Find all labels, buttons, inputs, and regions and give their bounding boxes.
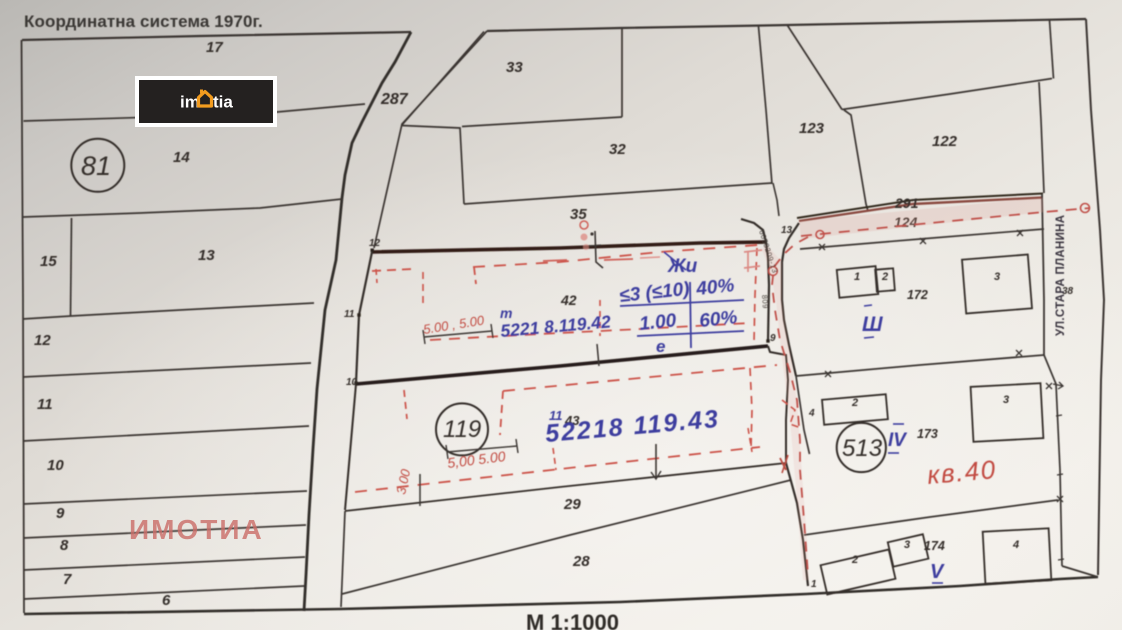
svg-text:УЛ.СТАРА ПЛАНИНА: УЛ.СТАРА ПЛАНИНА bbox=[1055, 215, 1067, 336]
svg-text:2: 2 bbox=[851, 397, 858, 409]
svg-text:60%: 60% bbox=[698, 307, 738, 332]
svg-text:40%: 40% bbox=[694, 275, 735, 300]
svg-text:3: 3 bbox=[1003, 394, 1009, 406]
svg-text:123: 123 bbox=[799, 120, 825, 137]
svg-text:172: 172 bbox=[907, 288, 928, 302]
svg-text:3: 3 bbox=[904, 539, 910, 551]
svg-text:11: 11 bbox=[549, 408, 563, 423]
svg-text:6: 6 bbox=[162, 592, 171, 609]
svg-text:Ш: Ш bbox=[862, 313, 883, 336]
svg-text:33: 33 bbox=[506, 59, 523, 76]
svg-text:17: 17 bbox=[206, 39, 223, 56]
svg-text:1.00: 1.00 bbox=[638, 310, 677, 335]
svg-text:7: 7 bbox=[63, 571, 72, 588]
svg-text:13: 13 bbox=[781, 225, 793, 236]
svg-text:9: 9 bbox=[56, 505, 65, 522]
svg-text:tіa: tіa bbox=[213, 93, 233, 112]
svg-text:e: e bbox=[656, 337, 665, 356]
svg-text:9: 9 bbox=[770, 333, 776, 344]
svg-text:42: 42 bbox=[560, 292, 577, 308]
svg-text:173: 173 bbox=[917, 427, 938, 441]
svg-text:1: 1 bbox=[854, 271, 860, 283]
svg-text:V: V bbox=[930, 561, 945, 583]
svg-text:2: 2 bbox=[881, 271, 888, 283]
svg-text:ИМОТИА: ИМОТИА bbox=[129, 514, 264, 545]
svg-text:174: 174 bbox=[924, 539, 945, 553]
svg-text:809: 809 bbox=[760, 295, 770, 310]
svg-text:кв.40: кв.40 bbox=[926, 454, 998, 490]
svg-text:11: 11 bbox=[37, 396, 53, 413]
svg-text:32: 32 bbox=[609, 141, 626, 158]
svg-text:13: 13 bbox=[198, 247, 215, 264]
svg-text:10: 10 bbox=[47, 457, 64, 474]
svg-text:2: 2 bbox=[851, 554, 858, 566]
svg-text:im: im bbox=[180, 93, 200, 112]
svg-text:М 1:1000: М 1:1000 bbox=[526, 610, 619, 630]
svg-text:12: 12 bbox=[369, 238, 381, 249]
svg-text:14: 14 bbox=[173, 149, 190, 166]
svg-text:т: т bbox=[500, 305, 512, 321]
svg-text:10: 10 bbox=[346, 377, 358, 388]
svg-text:15: 15 bbox=[40, 253, 57, 270]
svg-text:IV: IV bbox=[888, 430, 907, 451]
svg-text:1: 1 bbox=[811, 579, 817, 590]
svg-text:287: 287 bbox=[380, 91, 409, 108]
svg-text:29: 29 bbox=[563, 496, 581, 513]
svg-text:122: 122 bbox=[932, 133, 958, 150]
svg-text:4: 4 bbox=[808, 408, 815, 419]
svg-text:4: 4 bbox=[1012, 539, 1019, 551]
svg-text:28: 28 bbox=[572, 553, 590, 570]
svg-text:81: 81 bbox=[81, 151, 111, 181]
svg-text:513: 513 bbox=[842, 435, 883, 462]
svg-text:12: 12 bbox=[34, 332, 51, 349]
svg-text:8: 8 bbox=[60, 537, 69, 554]
svg-text:11: 11 bbox=[344, 309, 355, 320]
svg-text:119: 119 bbox=[443, 416, 481, 443]
svg-text:Координатна система 1970г.: Координатна система 1970г. bbox=[24, 12, 263, 31]
svg-text:291: 291 bbox=[894, 195, 919, 211]
svg-text:3: 3 bbox=[994, 271, 1000, 283]
